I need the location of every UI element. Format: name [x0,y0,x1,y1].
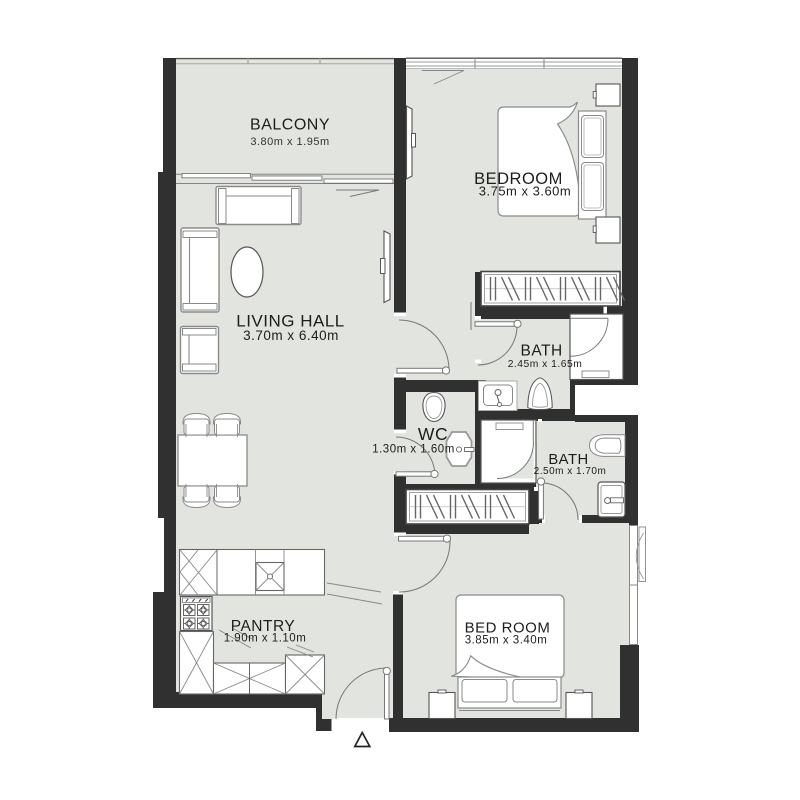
svg-text:3.70m x 6.40m: 3.70m x 6.40m [243,328,339,343]
svg-text:1.90m x 1.10m: 1.90m x 1.10m [224,633,307,645]
svg-text:1.30m x 1.60m: 1.30m x 1.60m [372,444,455,456]
svg-text:BATH: BATH [520,343,562,360]
svg-text:3.75m x 3.60m: 3.75m x 3.60m [479,184,572,199]
svg-text:2.50m x 1.70m: 2.50m x 1.70m [534,466,607,477]
svg-text:3.80m x 1.95m: 3.80m x 1.95m [250,136,329,148]
svg-text:2.45m x 1.65m: 2.45m x 1.65m [508,359,583,370]
svg-text:3.85m x 3.40m: 3.85m x 3.40m [465,635,548,647]
svg-text:WC: WC [418,424,448,444]
svg-text:BALCONY: BALCONY [250,117,330,134]
